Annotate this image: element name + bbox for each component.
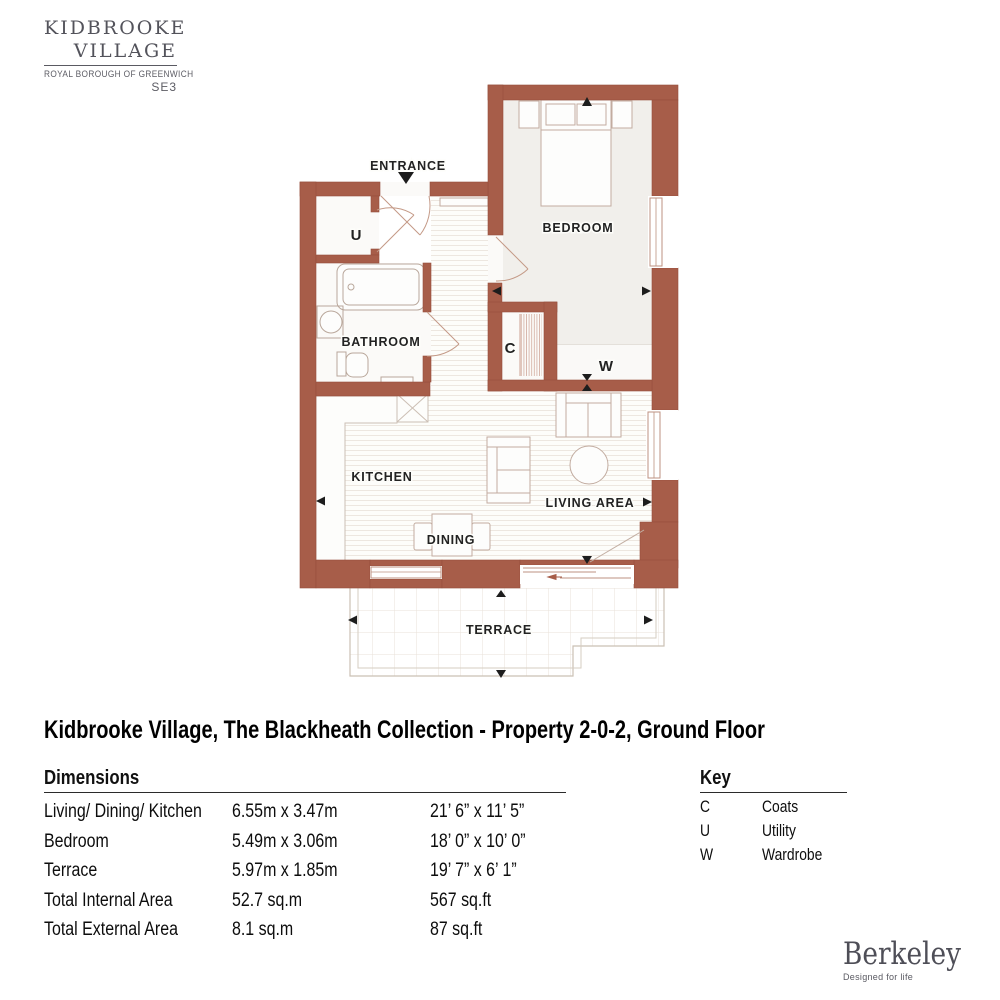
kitchen-label: KITCHEN bbox=[351, 470, 412, 484]
key-code: W bbox=[700, 847, 713, 864]
table-row: Total Internal Area 52.7 sq.m 567 sq.ft bbox=[44, 891, 566, 921]
wall-bottom-center-pier bbox=[442, 560, 520, 588]
hallway-floor-boards bbox=[431, 196, 488, 390]
entrance-label: ENTRANCE bbox=[370, 159, 446, 173]
table-row: Total External Area 8.1 sq.m 87 sq.ft bbox=[44, 920, 566, 950]
dimensions-rows: Living/ Dining/ Kitchen 6.55m x 3.47m 21… bbox=[44, 802, 566, 950]
coffee-table bbox=[570, 446, 608, 484]
wall-right-3 bbox=[652, 480, 678, 522]
key-row: C Coats bbox=[700, 799, 847, 823]
row-imperial: 21’ 6” x 11’ 5” bbox=[430, 802, 524, 821]
wall-utility-bottom bbox=[316, 255, 379, 263]
wall-utility-jamb-bottom bbox=[371, 249, 379, 255]
key-meaning: Utility bbox=[762, 823, 796, 840]
row-label: Living/ Dining/ Kitchen bbox=[44, 802, 202, 821]
wall-bottom-left-pier bbox=[316, 560, 370, 588]
row-imperial: 19’ 7” x 6’ 1” bbox=[430, 861, 517, 880]
wall-above-kitchen-window bbox=[370, 560, 442, 566]
wall-top-right-of-entrance bbox=[430, 182, 488, 196]
kitchen-window-void bbox=[370, 566, 442, 579]
coats-rail-hatch bbox=[520, 314, 542, 376]
key-row: W Wardrobe bbox=[700, 847, 847, 871]
floor-plan: ENTRANCE U BEDROOM BATHROOM C W KITCHEN … bbox=[0, 0, 1000, 710]
key-row: U Utility bbox=[700, 823, 847, 847]
wardrobe-label: W bbox=[599, 358, 614, 375]
utility-label: U bbox=[351, 227, 362, 244]
dimensions-table: Dimensions Living/ Dining/ Kitchen 6.55m… bbox=[44, 768, 566, 950]
key-table: Key C Coats U Utility W Wardrobe bbox=[700, 768, 847, 871]
bedroom-label: BEDROOM bbox=[543, 221, 614, 235]
bathroom-label: BATHROOM bbox=[341, 335, 420, 349]
wall-bedroom-left-upper bbox=[488, 85, 503, 235]
table-row: Terrace 5.97m x 1.85m 19’ 7” x 6’ 1” bbox=[44, 861, 566, 891]
wall-left bbox=[300, 182, 316, 588]
wall-right-2 bbox=[652, 268, 678, 410]
dimensions-heading: Dimensions bbox=[44, 768, 482, 788]
row-metric: 8.1 sq.m bbox=[232, 920, 293, 939]
wall-above-slider bbox=[520, 560, 634, 565]
pillow-right bbox=[577, 104, 606, 125]
dining-label: DINING bbox=[427, 533, 476, 547]
key-code: C bbox=[700, 799, 710, 816]
developer-logo: Berkeley Designed for life bbox=[843, 939, 982, 983]
living-window-void bbox=[646, 410, 678, 480]
key-heading: Key bbox=[700, 768, 823, 788]
table-row: Living/ Dining/ Kitchen 6.55m x 3.47m 21… bbox=[44, 802, 566, 832]
row-metric: 5.49m x 3.06m bbox=[232, 832, 338, 851]
entrance-door bbox=[381, 196, 430, 235]
utility-floor bbox=[316, 196, 371, 255]
toilet-cistern bbox=[337, 352, 346, 376]
row-imperial: 567 sq.ft bbox=[430, 891, 491, 910]
developer-logo-tagline: Designed for life bbox=[843, 972, 975, 983]
row-label: Total Internal Area bbox=[44, 891, 173, 910]
wall-coats-right bbox=[544, 302, 557, 391]
hall-radiator bbox=[440, 198, 488, 206]
row-label: Terrace bbox=[44, 861, 97, 880]
key-code: U bbox=[700, 823, 710, 840]
living-area-label: LIVING AREA bbox=[546, 496, 635, 510]
row-metric: 6.55m x 3.47m bbox=[232, 802, 338, 821]
wall-bathroom-right-lower bbox=[423, 356, 431, 382]
toilet-bowl bbox=[346, 353, 368, 377]
wall-bathroom-bottom bbox=[316, 382, 430, 396]
key-meaning: Wardrobe bbox=[762, 847, 822, 864]
basin bbox=[320, 311, 342, 333]
key-rule bbox=[700, 792, 847, 793]
developer-logo-name: Berkeley bbox=[843, 939, 961, 970]
row-imperial: 87 sq.ft bbox=[430, 920, 482, 939]
wall-bedroom-top bbox=[488, 85, 678, 100]
page-title: Kidbrooke Village, The Blackheath Collec… bbox=[44, 716, 765, 745]
row-metric: 52.7 sq.m bbox=[232, 891, 302, 910]
bedroom-window bbox=[648, 196, 678, 268]
wall-bathroom-right-upper bbox=[423, 263, 431, 312]
utility-door bbox=[377, 208, 414, 252]
pillow-left bbox=[546, 104, 575, 125]
wall-right-1 bbox=[652, 100, 678, 196]
row-metric: 5.97m x 1.85m bbox=[232, 861, 338, 880]
wall-bedroom-living-divider bbox=[488, 380, 652, 391]
bedside-table-right bbox=[612, 101, 632, 128]
coats-label: C bbox=[505, 340, 516, 357]
table-row: Bedroom 5.49m x 3.06m 18’ 0” x 10’ 0” bbox=[44, 832, 566, 862]
coats-rail bbox=[520, 314, 542, 376]
bedroom-window-void bbox=[648, 196, 678, 268]
row-label: Bedroom bbox=[44, 832, 109, 851]
wall-bedroom-left-lower bbox=[488, 283, 502, 391]
bathtub bbox=[337, 264, 425, 310]
dimensions-rule bbox=[44, 792, 566, 793]
living-window bbox=[646, 410, 678, 480]
kitchen-window bbox=[370, 566, 442, 579]
bathroom-door-threshold bbox=[423, 312, 431, 356]
entrance-threshold bbox=[380, 182, 430, 196]
row-imperial: 18’ 0” x 10’ 0” bbox=[430, 832, 526, 851]
key-meaning: Coats bbox=[762, 799, 798, 816]
key-rows: C Coats U Utility W Wardrobe bbox=[700, 799, 847, 871]
wall-corner-br bbox=[634, 560, 678, 588]
utility-door-threshold bbox=[371, 212, 379, 249]
bedside-table-left bbox=[519, 101, 539, 128]
row-label: Total External Area bbox=[44, 920, 178, 939]
wall-below-kitchen-window bbox=[370, 579, 442, 588]
terrace-label: TERRACE bbox=[466, 623, 532, 637]
